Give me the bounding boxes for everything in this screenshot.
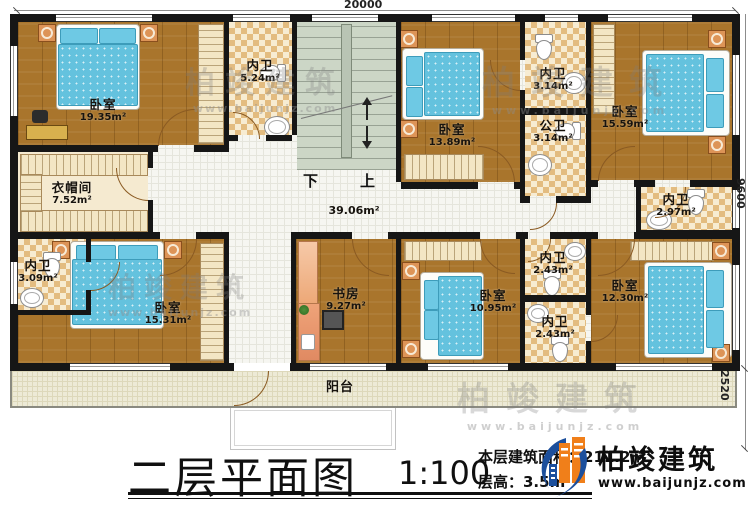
stair-rail [341,24,352,158]
room-label-bath-mid-lower: 内卫2.43m² [524,314,586,341]
cup [301,334,315,350]
wall [86,239,91,262]
stair-arrow-up [366,104,368,120]
wall [525,232,528,239]
hall-area-label: 39.06m² [309,204,399,217]
nightstand [712,242,730,260]
wall [525,196,530,203]
wardrobe [404,154,484,180]
window [233,14,290,22]
nightstand [38,24,56,42]
wall [591,180,598,187]
pillow [99,28,136,44]
wall [556,196,586,203]
room-label-bath-topleft: 内卫5.24m² [228,58,292,85]
window [310,363,386,371]
room-label-study: 书房9.27m² [301,286,391,313]
room-label-bath-mid-upper: 内卫2.43m² [522,250,584,277]
nightstand [402,262,420,280]
stair-arrow-down-head [362,141,372,149]
room-label-bath-topmid: 内卫3.14m² [522,66,584,93]
nightstand [708,136,726,154]
wall [229,135,238,141]
wall [396,14,401,182]
room-label-bedroom-topright: 卧室15.59m² [580,104,670,131]
wall [516,232,525,239]
nightstand [402,340,420,358]
stairs-up-label: 上 [360,170,375,191]
wall [18,310,91,315]
monitor [322,310,344,330]
pillow [706,310,724,348]
pillow [706,58,724,92]
wall [292,22,297,135]
nightstand [400,30,418,48]
room-label-cloakroom: 衣帽间7.52m² [27,180,117,207]
wall [586,341,591,363]
sink [528,154,552,176]
window [312,14,378,22]
wardrobe [593,24,615,114]
wall [10,232,160,239]
room-label-balcony: 阳台 [295,380,385,396]
wardrobe [198,24,224,144]
wardrobe [404,241,482,261]
wall [514,182,525,189]
brand-name: 柏竣建筑 [598,447,747,475]
window [10,46,18,116]
wall [266,135,292,141]
wall [148,200,153,232]
wardrobe [630,241,714,261]
wall [520,22,525,60]
pillow [424,280,439,310]
window [432,14,515,22]
sink [20,288,44,308]
desk [26,125,68,140]
wall [634,180,655,187]
wall [224,232,229,363]
wall [291,232,296,363]
wall [396,232,401,363]
brand-block: 柏竣建筑 www.baijunjz.com [538,434,747,504]
pillow [706,270,724,308]
wall [401,232,480,239]
floor-plan-canvas: 20000 9600 2520 下 上 [0,0,750,509]
dim-right-lower: 2520 [718,370,731,401]
room-label-bedroom-topmid: 卧室13.89m² [407,122,497,149]
room-label-bedroom-bottomleft: 卧室15.31m² [125,300,211,327]
wall [18,145,158,152]
stairs-down-label: 下 [303,170,318,191]
wall [636,187,641,230]
stair-arrow-up-head [362,97,372,105]
wall [591,232,598,239]
window [732,55,740,135]
wall [525,108,586,115]
plan-scale: 1:100 [398,454,490,492]
mattress [424,52,480,116]
pillow [118,245,158,260]
toilet [534,34,554,60]
wall [388,232,401,239]
wall [194,145,229,152]
pillow [60,28,98,44]
cloakroom-rack [20,210,148,232]
wall [550,232,586,239]
pillow [406,56,423,86]
wall [196,232,229,239]
window [732,265,740,350]
brand-url: www.baijunjz.com [598,476,747,491]
room-label-bath-public: 公卫3.14m² [522,118,584,145]
wall [148,152,153,168]
window [70,363,170,371]
pillow [424,310,439,340]
nightstand [708,30,726,48]
stair-arrow-down [366,126,368,142]
wall [401,182,478,189]
brand-logo-icon [538,434,590,504]
wall [291,232,352,239]
window [608,14,692,22]
dim-line-right [745,14,746,450]
room-label-bath-right: 内卫2.97m² [644,192,708,219]
window [56,14,152,22]
pillow [406,87,423,117]
window [616,363,712,371]
pillow [76,245,116,260]
plan-title: 二层平面图 [128,444,358,506]
window [428,363,508,371]
dim-right-upper: 9600 [734,178,747,209]
wall [634,232,732,239]
title-underline-thin [128,498,592,499]
wall [690,180,732,187]
room-label-bedroom-bottommid: 卧室10.95m² [448,288,538,315]
room-label-bedroom-topleft: 卧室19.35m² [58,97,148,124]
window [545,14,578,22]
chair [32,110,48,123]
dim-top: 20000 [344,0,382,11]
pillow [706,94,724,128]
room-label-bedroom-bottomright: 卧室12.30m² [580,278,670,305]
wall [224,22,229,152]
title-underline [128,492,592,495]
nightstand [140,24,158,42]
room-label-bath-bottomleft: 内卫3.09m² [8,258,68,285]
